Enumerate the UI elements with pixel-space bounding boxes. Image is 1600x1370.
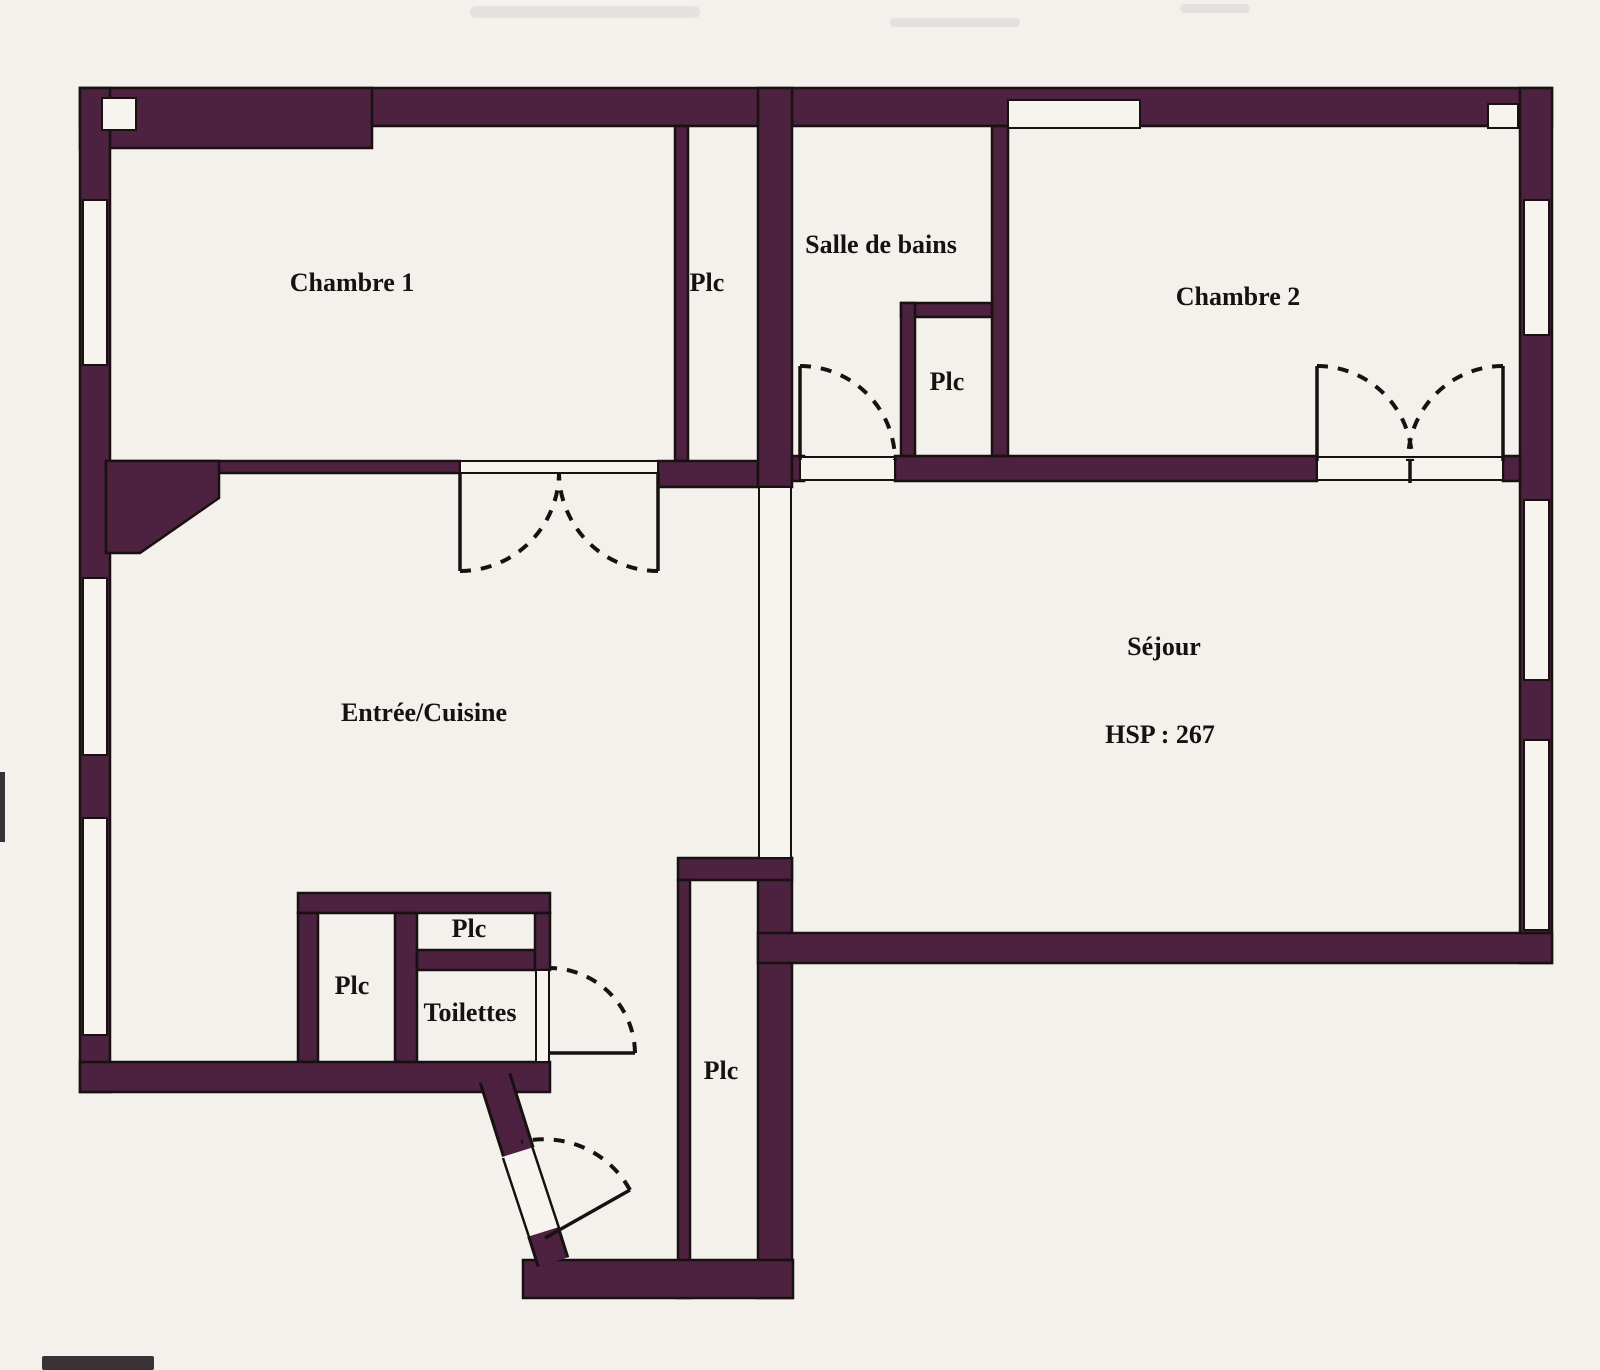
label-salle-de-bains: Salle de bains <box>805 230 957 259</box>
notch-top-left <box>102 98 136 130</box>
wall-block-left <box>298 913 318 1062</box>
label-plc-couloir-bas: Plc <box>704 1056 739 1085</box>
label-entree-cuisine: Entrée/Cuisine <box>341 698 507 727</box>
wall-spine-upper <box>758 88 792 487</box>
wall-sejour-bottom <box>758 933 1552 963</box>
wall-entree-bottom <box>80 1062 550 1092</box>
wall-spine-lower <box>758 858 792 1298</box>
wall-plc-bas-top <box>678 858 792 880</box>
wall-block-center <box>395 913 417 1062</box>
scan-streak-3 <box>1180 4 1250 13</box>
wall-block-right-upper <box>535 913 550 970</box>
scan-streak-2 <box>890 18 1020 27</box>
label-plc-salle-de-bains: Plc <box>930 367 965 396</box>
wall-bathroom-chambre2 <box>992 126 1008 456</box>
label-sejour: Séjour <box>1127 632 1201 661</box>
window-chambre1-left <box>83 200 107 365</box>
window-entree-left-upper <box>83 578 107 755</box>
wall-sejour-top-seg2 <box>895 456 1317 481</box>
scan-smudge-bottom-left <box>42 1356 154 1370</box>
window-chambre2-right <box>1524 200 1549 335</box>
wall-plc-bas-left <box>678 880 690 1298</box>
label-chambre1: Chambre 1 <box>290 268 414 297</box>
label-plc-entree-haut: Plc <box>452 914 487 943</box>
label-toilettes: Toilettes <box>424 998 517 1027</box>
scan-streak-1 <box>470 6 700 18</box>
label-chambre2: Chambre 2 <box>1176 282 1300 311</box>
door-gap-toilettes <box>536 970 549 1062</box>
label-plc-entree-gauche: Plc <box>335 971 370 1000</box>
wall-sejour-top-seg3 <box>1503 456 1520 481</box>
window-entree-left-lower <box>83 818 107 1035</box>
label-plc-couloir-haut: Plc <box>690 268 725 297</box>
scan-mark-left-edge <box>0 772 5 842</box>
door-gap-entrance <box>518 1152 543 1232</box>
paper-background <box>0 0 1600 1370</box>
wall-block-mid <box>417 950 535 970</box>
label-sejour-hsp: HSP : 267 <box>1105 720 1215 749</box>
door-gap-chambre1 <box>460 461 658 473</box>
window-sejour-right-upper <box>1524 500 1549 680</box>
wall-plc-haut-left <box>675 126 688 461</box>
floor-plan-svg: Chambre 1 Plc Salle de bains Plc Chambre… <box>0 0 1600 1370</box>
wall-plc-haut-bottom <box>658 461 758 487</box>
notch-top-right <box>1488 104 1518 128</box>
wall-bathroom-plc-left <box>901 303 915 456</box>
passage-entree-sejour <box>759 487 791 858</box>
wall-hall-bottom <box>523 1260 793 1298</box>
door-gap-bathroom <box>800 457 895 480</box>
window-sejour-right-lower <box>1524 740 1549 930</box>
window-chambre2-top <box>1008 100 1140 128</box>
floor-plan-scan: Chambre 1 Plc Salle de bains Plc Chambre… <box>0 0 1600 1370</box>
wall-block-top <box>298 893 550 913</box>
